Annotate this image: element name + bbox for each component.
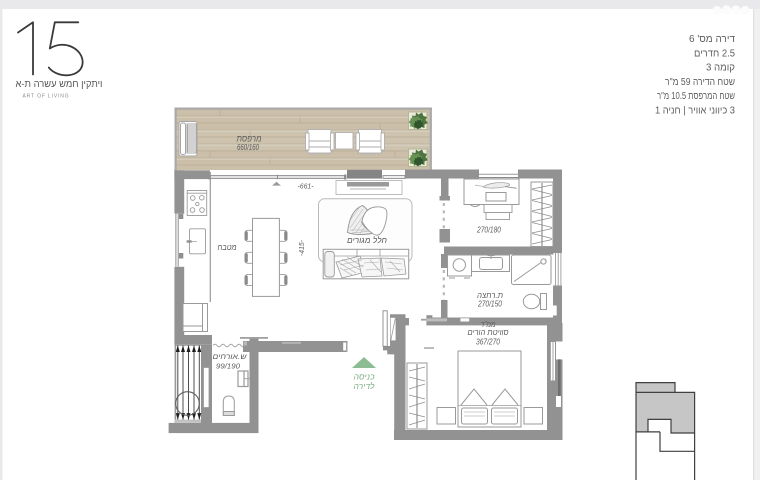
svg-text:קומה 3: קומה 3	[706, 63, 735, 74]
svg-text:ART OF LIVING: ART OF LIVING	[23, 93, 70, 99]
svg-text:לדירה: לדירה	[354, 382, 376, 391]
svg-text:דירה מס' 6: דירה מס' 6	[689, 34, 735, 45]
svg-text:מטבח: מטבח	[218, 242, 237, 252]
svg-text:שטח הדירה 59 מ"ר: שטח הדירה 59 מ"ר	[665, 77, 735, 88]
svg-text:ויתקין חמש עשרה ת-א: ויתקין חמש עשרה ת-א	[16, 79, 103, 90]
svg-text:-415-: -415-	[297, 240, 306, 256]
svg-text:660/160: 660/160	[237, 142, 259, 152]
svg-text:99/190: 99/190	[216, 362, 241, 371]
svg-text:3 כיווני אוויר | חניה 1: 3 כיווני אוויר | חניה 1	[655, 106, 735, 117]
svg-text:-661-: -661-	[298, 182, 314, 191]
svg-text:חלל מגורים: חלל מגורים	[347, 235, 387, 245]
svg-text:270/180: 270/180	[476, 225, 501, 235]
svg-text:367/270: 367/270	[476, 338, 500, 347]
svg-text:כניסה: כניסה	[354, 373, 375, 382]
svg-text:שטח המרפסת 10.5 מ"ר: שטח המרפסת 10.5 מ"ר	[657, 91, 735, 102]
svg-text:2.5 חדרים: 2.5 חדרים	[694, 48, 735, 59]
svg-text:סוויטת הורים: סוויטת הורים	[468, 328, 510, 337]
svg-text:270/150: 270/150	[477, 300, 502, 309]
svg-text:ש.אורחים: ש.אורחים	[213, 352, 248, 361]
